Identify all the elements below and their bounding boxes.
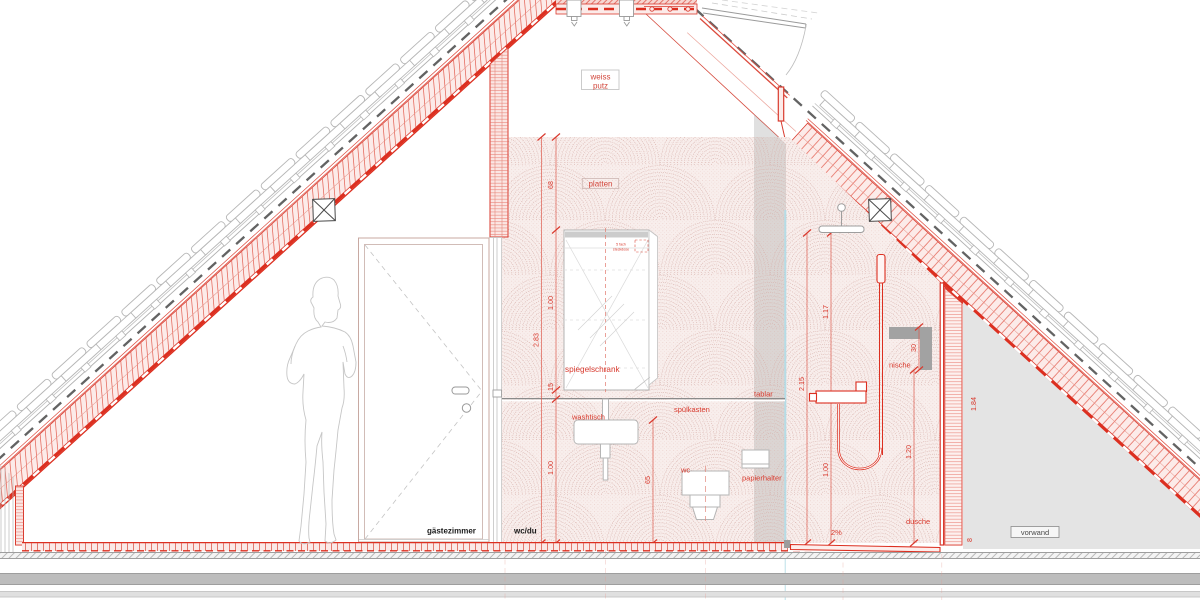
svg-text:putz: putz: [593, 82, 608, 91]
svg-text:8: 8: [965, 538, 974, 542]
svg-text:15: 15: [546, 383, 555, 391]
svg-text:washtisch: washtisch: [571, 413, 605, 422]
svg-text:spiegelschrank: spiegelschrank: [565, 365, 621, 374]
svg-text:dusche: dusche: [906, 517, 930, 526]
svg-text:68: 68: [546, 181, 555, 189]
svg-text:1.20: 1.20: [904, 445, 913, 459]
svg-text:1.00: 1.00: [821, 463, 830, 477]
svg-text:2.83: 2.83: [532, 333, 541, 347]
svg-text:2.15: 2.15: [797, 377, 806, 391]
svg-text:2%: 2%: [831, 528, 842, 537]
svg-text:gästezimmer: gästezimmer: [427, 527, 476, 536]
svg-text:1.17: 1.17: [821, 305, 830, 319]
svg-text:5 fach: 5 fach: [616, 243, 626, 247]
svg-text:wc: wc: [680, 466, 690, 475]
svg-text:vorwand: vorwand: [1021, 528, 1049, 537]
svg-text:platten: platten: [588, 180, 612, 189]
svg-text:steckdose: steckdose: [613, 248, 629, 252]
svg-text:papierhalter: papierhalter: [742, 474, 782, 483]
svg-text:65: 65: [643, 476, 652, 484]
svg-text:1.00: 1.00: [546, 461, 555, 475]
svg-text:spülkasten: spülkasten: [674, 405, 710, 414]
svg-text:1.84: 1.84: [969, 397, 978, 411]
svg-text:30: 30: [909, 344, 918, 352]
svg-text:tablar: tablar: [754, 390, 773, 399]
svg-text:nische: nische: [889, 361, 911, 370]
svg-text:1.00: 1.00: [546, 296, 555, 310]
svg-text:wc/du: wc/du: [513, 527, 537, 536]
svg-text:weiss: weiss: [589, 73, 610, 82]
